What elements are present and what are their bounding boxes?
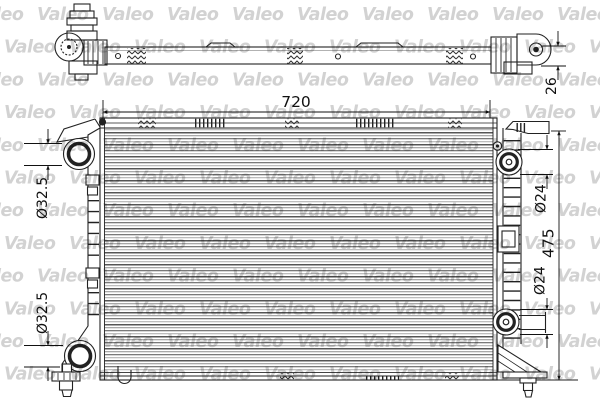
- brand-watermark: Valeo: [0, 201, 24, 221]
- brand-watermark: Valeo: [232, 5, 284, 25]
- brand-watermark: Valeo: [362, 5, 414, 25]
- brand-watermark: Valeo: [0, 332, 24, 352]
- brand-watermark: Valeo: [37, 136, 89, 156]
- brand-watermark: Valeo: [329, 234, 381, 254]
- brand-watermark: Valeo: [167, 5, 219, 25]
- upper-right-bracket: [506, 122, 549, 134]
- brand-watermark: Valeo: [329, 103, 381, 123]
- brand-watermark: Valeo: [69, 103, 121, 123]
- brand-watermark: Valeo: [167, 332, 219, 352]
- brand-watermark: Valeo: [329, 169, 381, 189]
- brand-watermark: Valeo: [69, 38, 121, 58]
- brand-watermark: Valeo: [459, 365, 511, 385]
- brand-watermark: Valeo: [167, 136, 219, 156]
- brand-watermark: Valeo: [264, 234, 316, 254]
- brand-watermark: Valeo: [394, 38, 446, 58]
- brand-watermark: Valeo: [362, 332, 414, 352]
- brand-watermark: Valeo: [134, 234, 186, 254]
- brand-watermark: Valeo: [557, 70, 600, 90]
- brand-watermark: Valeo: [37, 5, 89, 25]
- brand-watermark: Valeo: [427, 136, 479, 156]
- brand-watermark: Valeo: [199, 169, 251, 189]
- brand-watermark: Valeo: [394, 169, 446, 189]
- brand-watermark: Valeo: [37, 267, 89, 287]
- brand-watermark: Valeo: [37, 70, 89, 90]
- brand-watermark: Valeo: [134, 38, 186, 58]
- brand-watermark: Valeo: [0, 267, 24, 287]
- brand-watermark: Valeo: [69, 299, 121, 319]
- brand-watermark: Valeo: [102, 5, 154, 25]
- brand-watermark: Valeo: [4, 299, 56, 319]
- brand-watermark: Valeo: [297, 201, 349, 221]
- brand-watermark: Valeo: [102, 332, 154, 352]
- brand-watermark: Valeo: [134, 299, 186, 319]
- brand-watermark: Valeo: [362, 267, 414, 287]
- brand-watermark: Valeo: [524, 103, 576, 123]
- brand-watermark: Valeo: [557, 136, 600, 156]
- brand-watermark: Valeo: [427, 267, 479, 287]
- brand-watermark: Valeo: [102, 70, 154, 90]
- brand-watermark: Valeo: [524, 234, 576, 254]
- brand-watermark: Valeo: [492, 70, 544, 90]
- brand-watermark: Valeo: [427, 201, 479, 221]
- brand-watermark: Valeo: [199, 365, 251, 385]
- brand-watermark: Valeo: [4, 38, 56, 58]
- brand-watermark: Valeo: [264, 169, 316, 189]
- brand-watermark: Valeo: [492, 136, 544, 156]
- brand-watermark: Valeo: [557, 201, 600, 221]
- brand-watermark: Valeo: [297, 136, 349, 156]
- brand-watermark: Valeo: [37, 201, 89, 221]
- brand-watermark: Valeo: [264, 103, 316, 123]
- brand-watermark: Valeo: [394, 234, 446, 254]
- brand-watermark: Valeo: [69, 365, 121, 385]
- brand-watermark: Valeo: [134, 103, 186, 123]
- brand-watermark: Valeo: [589, 103, 600, 123]
- brand-watermark: Valeo: [69, 169, 121, 189]
- brand-watermark: Valeo: [297, 5, 349, 25]
- brand-watermark: Valeo: [167, 70, 219, 90]
- brand-watermark: Valeo: [589, 299, 600, 319]
- brand-watermark: Valeo: [459, 169, 511, 189]
- brand-watermark: Valeo: [102, 136, 154, 156]
- brand-watermark: Valeo: [427, 5, 479, 25]
- brand-watermark: Valeo: [524, 299, 576, 319]
- right-tank: [493, 122, 549, 398]
- brand-watermark: Valeo: [232, 136, 284, 156]
- brand-watermark: Valeo: [199, 234, 251, 254]
- brand-watermark: Valeo: [524, 169, 576, 189]
- brand-watermark: Valeo: [459, 38, 511, 58]
- brand-watermark: Valeo: [4, 169, 56, 189]
- brand-watermark: Valeo: [69, 234, 121, 254]
- brand-watermark: Valeo: [4, 234, 56, 254]
- brand-watermark: Valeo: [134, 365, 186, 385]
- brand-watermark: Valeo: [492, 267, 544, 287]
- brand-watermark: Valeo: [232, 332, 284, 352]
- brand-watermark: Valeo: [0, 5, 24, 25]
- brand-watermark: Valeo: [362, 70, 414, 90]
- brand-watermark: Valeo: [134, 169, 186, 189]
- brand-watermark: Valeo: [329, 365, 381, 385]
- brand-watermark: Valeo: [589, 365, 600, 385]
- front-view: [52, 118, 578, 397]
- brand-watermark: Valeo: [394, 103, 446, 123]
- brand-watermark: Valeo: [589, 234, 600, 254]
- brand-watermark: Valeo: [557, 267, 600, 287]
- brand-watermark: Valeo: [167, 267, 219, 287]
- brand-watermark: Valeo: [427, 332, 479, 352]
- brand-watermark: Valeo: [459, 103, 511, 123]
- brand-watermark: Valeo: [394, 365, 446, 385]
- brand-watermark: Valeo: [0, 70, 24, 90]
- brand-watermark: Valeo: [232, 201, 284, 221]
- brand-watermark: Valeo: [557, 332, 600, 352]
- brand-watermark: Valeo: [167, 201, 219, 221]
- brand-watermark: Valeo: [492, 201, 544, 221]
- brand-watermark: Valeo: [589, 169, 600, 189]
- brand-watermark: Valeo: [362, 201, 414, 221]
- brand-watermark: Valeo: [199, 38, 251, 58]
- brand-watermark: Valeo: [459, 234, 511, 254]
- brand-watermark: Valeo: [102, 267, 154, 287]
- brand-watermark: Valeo: [524, 365, 576, 385]
- brand-watermark: Valeo: [492, 332, 544, 352]
- brand-watermark: Valeo: [427, 70, 479, 90]
- brand-watermark: Valeo: [492, 5, 544, 25]
- brand-watermark: Valeo: [102, 201, 154, 221]
- brand-watermark: Valeo: [264, 38, 316, 58]
- brand-watermark: Valeo: [37, 332, 89, 352]
- break-mark: [445, 373, 459, 379]
- brand-watermark: Valeo: [297, 70, 349, 90]
- brand-watermark: Valeo: [199, 103, 251, 123]
- brand-watermark: Valeo: [557, 5, 600, 25]
- brand-watermark: Valeo: [459, 299, 511, 319]
- brand-watermark: Valeo: [264, 299, 316, 319]
- brand-watermark: Valeo: [232, 267, 284, 287]
- brand-watermark: Valeo: [394, 299, 446, 319]
- brand-watermark: Valeo: [297, 267, 349, 287]
- brand-watermark: Valeo: [329, 38, 381, 58]
- brand-watermark: Valeo: [264, 365, 316, 385]
- brand-watermark: Valeo: [0, 136, 24, 156]
- brand-watermark: Valeo: [329, 299, 381, 319]
- brand-watermark: Valeo: [4, 365, 56, 385]
- brand-watermark: Valeo: [524, 38, 576, 58]
- brand-watermark: Valeo: [297, 332, 349, 352]
- brand-watermark: Valeo: [362, 136, 414, 156]
- brand-watermark: Valeo: [232, 70, 284, 90]
- brand-watermark: Valeo: [589, 38, 600, 58]
- brand-watermark: Valeo: [199, 299, 251, 319]
- radiator-technical-drawing: 26: [0, 0, 600, 400]
- brand-watermark: Valeo: [4, 103, 56, 123]
